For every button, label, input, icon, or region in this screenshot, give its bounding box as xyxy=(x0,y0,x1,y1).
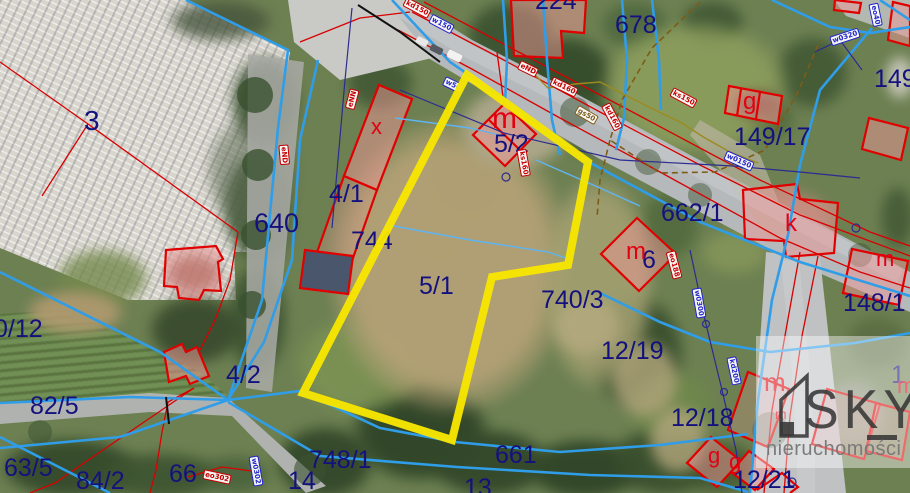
cadastral-aerial-map: 36404/17445/15/2224678149149/17662/16740… xyxy=(0,0,910,493)
highlighted-parcel-outline xyxy=(303,75,588,440)
watermark-brand: SKY xyxy=(804,379,910,442)
watermark: SKY nieruchomości xyxy=(756,336,910,468)
watermark-subtitle: nieruchomości xyxy=(766,438,901,461)
